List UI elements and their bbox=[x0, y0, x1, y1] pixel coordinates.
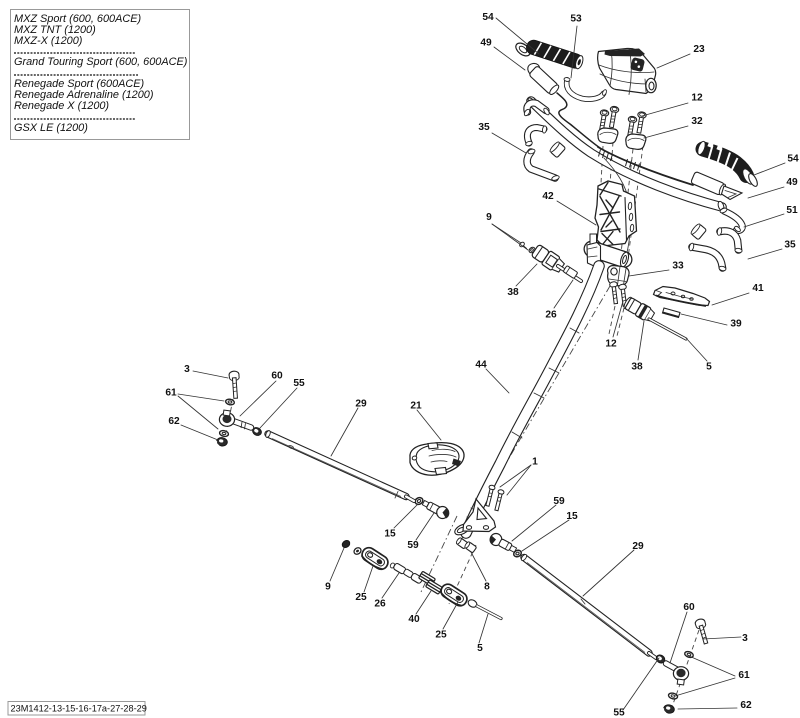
svg-text:5: 5 bbox=[706, 362, 712, 373]
svg-text:61: 61 bbox=[738, 670, 750, 681]
svg-text:59: 59 bbox=[553, 496, 565, 507]
svg-text:26: 26 bbox=[374, 599, 386, 610]
svg-text:9: 9 bbox=[325, 582, 331, 593]
svg-text:62: 62 bbox=[740, 700, 752, 711]
svg-text:15: 15 bbox=[566, 511, 578, 522]
svg-text:Grand Touring Sport (600, 600A: Grand Touring Sport (600, 600ACE) bbox=[14, 56, 187, 68]
svg-text:51: 51 bbox=[786, 205, 798, 216]
svg-text:35: 35 bbox=[784, 240, 796, 251]
svg-text:32: 32 bbox=[691, 116, 703, 127]
svg-text:42: 42 bbox=[542, 191, 554, 202]
svg-text:38: 38 bbox=[507, 287, 519, 298]
svg-text:12: 12 bbox=[691, 93, 703, 104]
svg-text:12: 12 bbox=[605, 339, 617, 350]
svg-text:33: 33 bbox=[672, 261, 684, 272]
svg-text:54: 54 bbox=[787, 154, 799, 165]
svg-text:25: 25 bbox=[355, 592, 367, 603]
svg-text:59: 59 bbox=[407, 540, 419, 551]
svg-text:39: 39 bbox=[730, 319, 742, 330]
svg-text:40: 40 bbox=[408, 614, 420, 625]
svg-text:3: 3 bbox=[742, 633, 748, 644]
svg-text:49: 49 bbox=[786, 177, 798, 188]
svg-text:29: 29 bbox=[355, 399, 367, 410]
svg-text:44: 44 bbox=[475, 360, 487, 371]
svg-text:53: 53 bbox=[570, 14, 582, 25]
svg-text:26: 26 bbox=[545, 310, 557, 321]
svg-text:55: 55 bbox=[613, 708, 625, 718]
svg-text:MXZ-X (1200): MXZ-X (1200) bbox=[14, 35, 82, 47]
svg-text:41: 41 bbox=[752, 283, 764, 294]
svg-text:35: 35 bbox=[478, 122, 490, 133]
svg-text:5: 5 bbox=[477, 643, 483, 654]
svg-text:54: 54 bbox=[482, 12, 494, 23]
svg-text:9: 9 bbox=[486, 212, 492, 223]
svg-text:23M1412-13-15-16-17a-27-28-29: 23M1412-13-15-16-17a-27-28-29 bbox=[11, 704, 147, 714]
svg-text:25: 25 bbox=[435, 630, 447, 641]
svg-text:61: 61 bbox=[165, 388, 177, 399]
svg-text:60: 60 bbox=[271, 371, 283, 382]
svg-text:21: 21 bbox=[410, 401, 422, 412]
svg-text:15: 15 bbox=[384, 529, 396, 540]
svg-text:8: 8 bbox=[484, 582, 490, 593]
svg-text:23: 23 bbox=[693, 44, 705, 55]
svg-text:49: 49 bbox=[480, 38, 492, 49]
svg-text:60: 60 bbox=[683, 602, 695, 613]
svg-text:GSX LE (1200): GSX LE (1200) bbox=[14, 122, 88, 134]
svg-text:55: 55 bbox=[293, 378, 305, 389]
svg-text:3: 3 bbox=[184, 364, 190, 375]
svg-text:62: 62 bbox=[168, 416, 180, 427]
svg-text:1: 1 bbox=[532, 457, 538, 468]
svg-text:38: 38 bbox=[631, 362, 643, 373]
svg-text:29: 29 bbox=[632, 541, 644, 552]
svg-text:Renegade X (1200): Renegade X (1200) bbox=[14, 100, 109, 112]
